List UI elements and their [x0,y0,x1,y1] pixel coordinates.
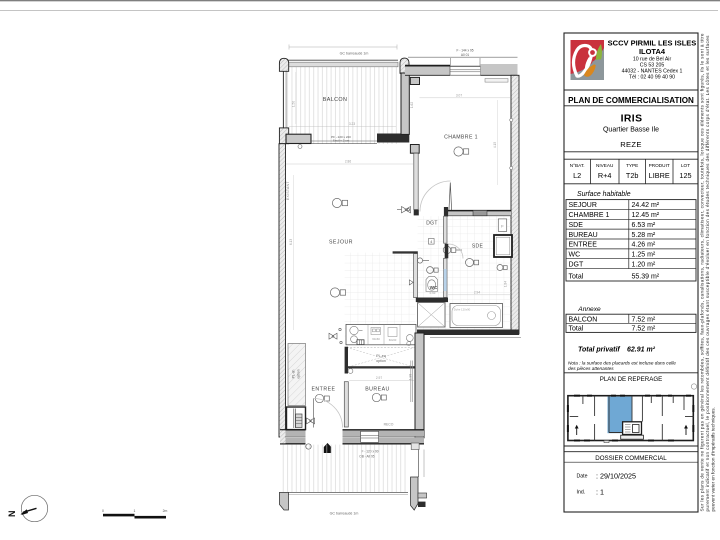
svg-text:SDE: SDE [569,222,584,229]
svg-text:L2: L2 [573,171,581,180]
svg-text:des pièces attenantes: des pièces attenantes [568,366,614,371]
svg-text:1.25 m²: 1.25 m² [632,252,656,259]
svg-text:A0 01: A0 01 [461,53,470,57]
svg-text:BUREAU: BUREAU [365,387,390,393]
svg-text:1.50: 1.50 [292,101,296,107]
svg-text:7.52 m²: 7.52 m² [632,316,656,323]
svg-text:1.20 m²: 1.20 m² [632,261,656,268]
svg-text:PL-sh: PL-sh [292,369,296,378]
svg-text:DGT: DGT [426,221,437,227]
svg-text:6.53 m²: 6.53 m² [632,222,656,229]
svg-text:peuvent varier en fonction d': peuvent varier en fonction d'impératifs … [711,407,716,511]
svg-text:CHAMBRE 1: CHAMBRE 1 [569,212,610,219]
svg-text:0.93: 0.93 [430,291,436,295]
svg-text:RECO: RECO [384,423,394,427]
svg-text:2.97: 2.97 [376,376,382,380]
svg-text:DOSSIER COMMERCIAL: DOSSIER COMMERCIAL [595,455,667,462]
svg-text:T2b: T2b [626,171,639,180]
svg-text:62.91 m²: 62.91 m² [627,347,656,354]
svg-text:2m: 2m [163,509,168,513]
svg-text:2.86: 2.86 [345,160,351,164]
svg-text:LOT: LOT [681,163,690,168]
svg-text:REZE: REZE [620,140,641,149]
svg-text:GC barreaudé 1m: GC barreaudé 1m [330,512,359,516]
svg-text:PRODUIT: PRODUIT [649,163,670,168]
svg-text:Total privatif: Total privatif [578,347,620,354]
svg-text:4.15: 4.15 [493,142,497,148]
svg-text:LIBRE: LIBRE [649,171,670,180]
svg-text:EXISTANT: EXISTANT [286,181,290,200]
svg-text:ENTREE: ENTREE [311,387,335,393]
svg-text:SDE: SDE [472,244,484,250]
svg-text:SEJOUR: SEJOUR [569,202,597,209]
svg-text:BUREAU: BUREAU [569,232,598,239]
svg-text:Sur les plans de vente ne figu: Sur les plans de vente ne figurent pas e… [700,33,705,511]
svg-text:SEJOUR: SEJOUR [329,240,353,246]
svg-text:5.28 m²: 5.28 m² [632,232,656,239]
svg-text:ILOTA4: ILOTA4 [639,47,666,56]
svg-text:55.39 m²: 55.39 m² [632,273,660,280]
svg-text:Annexe: Annexe [577,306,601,313]
svg-text:2.94: 2.94 [474,290,480,294]
svg-text:Tél : 02 40 99 40 90: Tél : 02 40 99 40 90 [629,74,675,80]
svg-text:60x60: 60x60 [372,337,380,341]
svg-text:0: 0 [102,509,104,513]
svg-text:GC barreaudé 1m: GC barreaudé 1m [340,52,369,56]
svg-text:IRIS: IRIS [621,113,643,124]
svg-text:1.62: 1.62 [410,102,414,108]
svg-text:PL-eq: PL-eq [376,354,386,358]
svg-text:option: option [376,359,386,363]
svg-text:Total: Total [569,326,584,333]
svg-text:Total: Total [569,273,584,280]
svg-text:TYPE: TYPE [626,163,638,168]
svg-text:Nota : la surface des placards: Nota : la surface des placards est inclu… [568,361,676,366]
svg-text:4: 4 [430,240,432,244]
svg-text:CHAMBRE 1: CHAMBRE 1 [444,135,478,141]
svg-text:R+4: R+4 [598,171,612,180]
svg-text:1.84: 1.84 [504,281,508,287]
svg-text:12.45 m²: 12.45 m² [632,212,660,219]
svg-text:Surface habitable: Surface habitable [577,191,631,198]
svg-text:4.26 m²: 4.26 m² [632,242,656,249]
svg-text:60x60: 60x60 [389,338,397,342]
svg-text:Ind.: Ind. [577,490,586,496]
svg-text:DGT: DGT [569,261,585,268]
svg-text:purement indicatif et non cont: purement indicatif et non contractuel, l… [705,35,710,512]
svg-text:: 29/10/2025: : 29/10/2025 [596,472,636,481]
svg-text:3.23: 3.23 [349,122,355,126]
svg-text:24.42 m²: 24.42 m² [632,202,660,209]
svg-text:: 1: : 1 [596,488,604,497]
svg-text:Seuil < 2 cm: Seuil < 2 cm [333,139,350,143]
svg-text:BALCON: BALCON [323,97,348,103]
svg-text:BALCON: BALCON [569,316,598,323]
svg-text:1: 1 [134,509,136,513]
svg-text:ENTREE: ENTREE [569,242,598,249]
svg-text:PLAN DE COMMERCIALISATION: PLAN DE COMMERCIALISATION [568,96,694,105]
svg-text:6.13: 6.13 [289,239,293,245]
svg-text:3.07: 3.07 [456,93,462,97]
svg-text:Quartier Basse Ile: Quartier Basse Ile [603,127,659,134]
svg-text:Dche 120x90: Dche 120x90 [454,308,471,312]
svg-text:N°BAT.: N°BAT. [570,163,585,168]
svg-text:7.52 m²: 7.52 m² [632,326,656,333]
svg-text:Date: Date [577,474,588,480]
svg-text:NIVEAU: NIVEAU [596,163,614,168]
svg-text:WC: WC [569,252,581,259]
svg-text:option: option [297,369,301,378]
svg-text:125: 125 [679,171,691,180]
svg-text:PLAN DE REPERAGE: PLAN DE REPERAGE [600,376,663,383]
svg-text:WC: WC [430,285,438,290]
svg-text:N: N [7,511,17,518]
